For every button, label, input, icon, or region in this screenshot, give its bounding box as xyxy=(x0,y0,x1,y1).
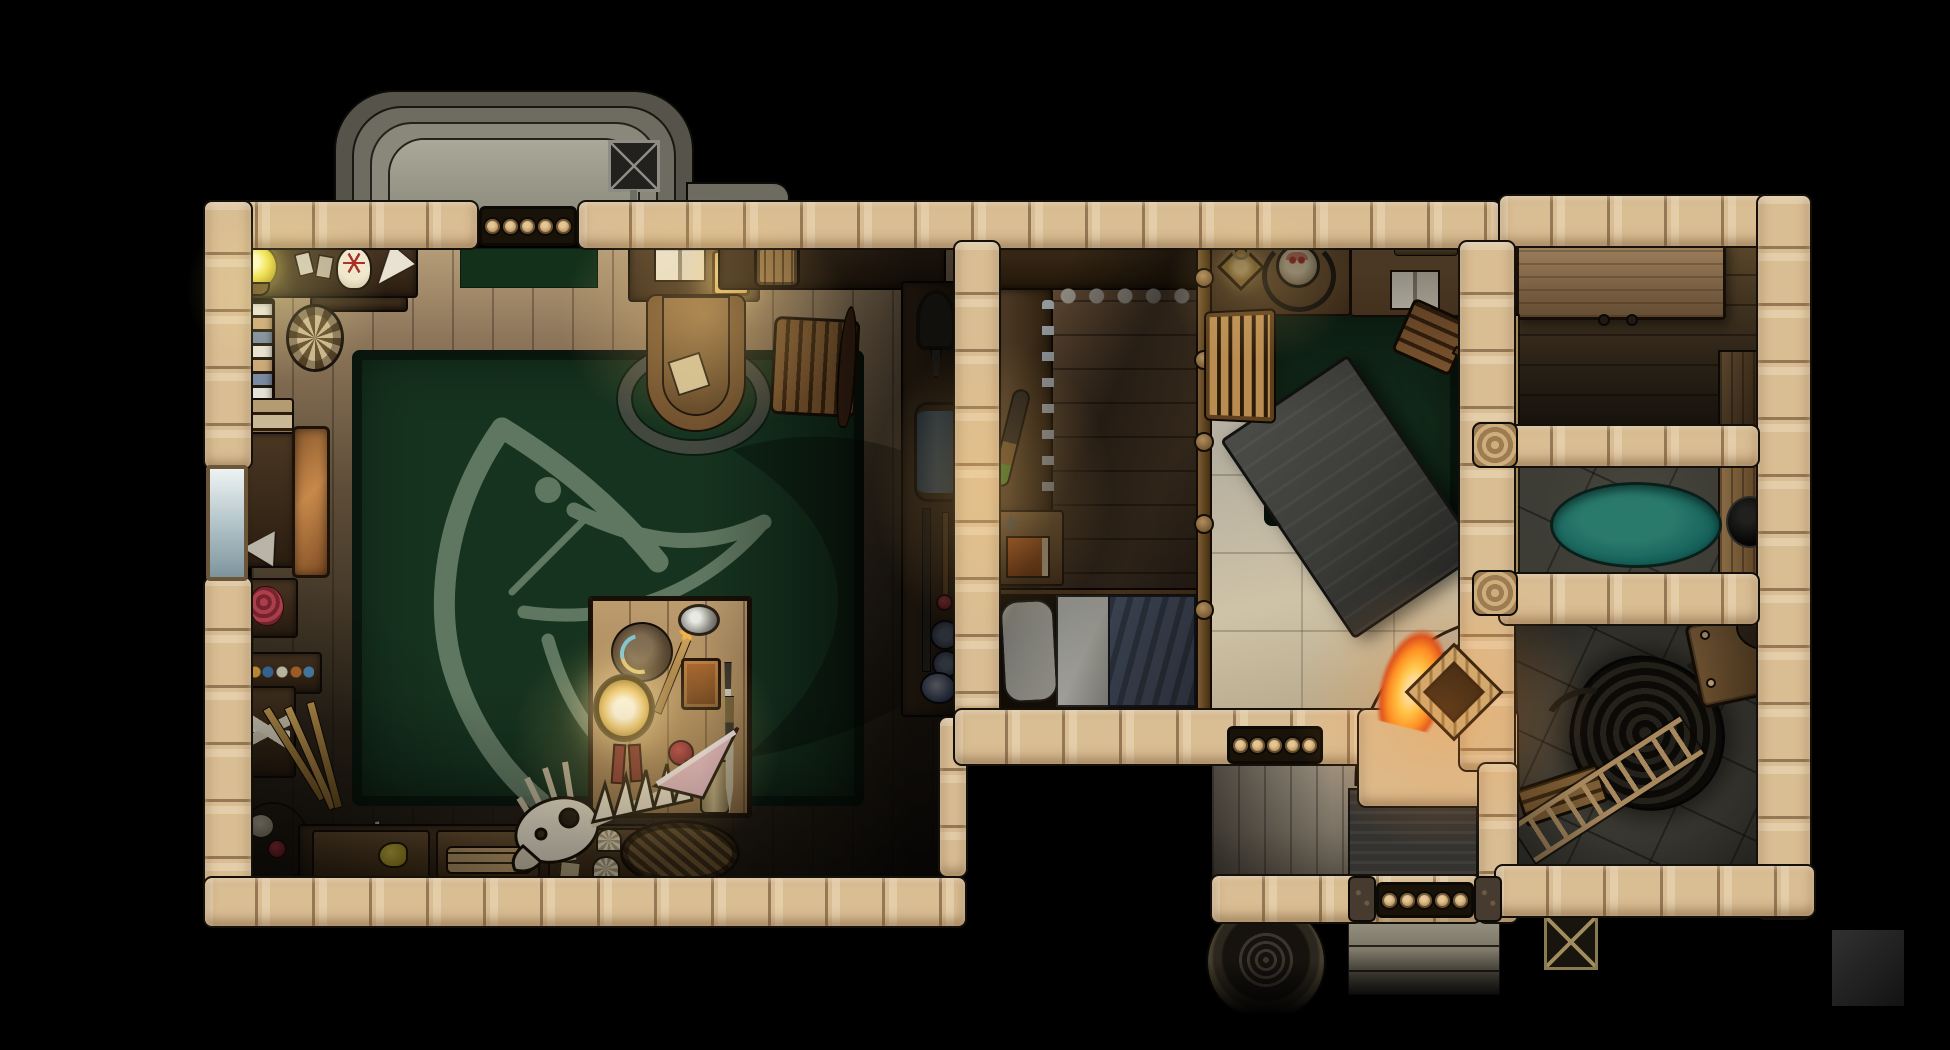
stool-bolt xyxy=(1706,678,1716,688)
window-post xyxy=(1348,876,1376,922)
weathervane-south xyxy=(1544,914,1598,970)
potion-bottles xyxy=(250,660,314,684)
pouch xyxy=(920,672,956,704)
wall-left-upper xyxy=(203,200,253,470)
wall-wash-cellar-divider xyxy=(1498,572,1760,626)
bedroom-counter xyxy=(990,244,1202,290)
glass-window-left xyxy=(206,465,248,581)
pentagram-mark xyxy=(343,252,365,274)
log-window-porch xyxy=(1376,882,1474,918)
copper-trunk xyxy=(292,426,330,578)
window-log xyxy=(1302,738,1317,753)
drawer-knob xyxy=(1598,314,1610,326)
blanket xyxy=(1108,595,1196,707)
nest-red-ball xyxy=(268,840,286,858)
seashell xyxy=(596,828,622,852)
drawer-knob xyxy=(1626,314,1638,326)
duck-figurine xyxy=(378,842,408,868)
wall-storage-wash-divider xyxy=(1498,424,1760,468)
entrails xyxy=(250,586,284,626)
crib-gate xyxy=(1206,310,1274,421)
window-log xyxy=(1250,738,1265,753)
orange-book xyxy=(1006,536,1050,578)
stool-bolt xyxy=(1700,630,1710,640)
window-post xyxy=(1474,876,1502,922)
keg xyxy=(754,244,800,288)
rail-knob xyxy=(1194,268,1214,288)
cabinet xyxy=(312,830,430,880)
wash-pool xyxy=(1550,482,1722,568)
bellows xyxy=(916,290,956,350)
green-mat xyxy=(460,248,598,288)
bench-bottles xyxy=(1042,300,1054,500)
wall-post xyxy=(1472,570,1518,616)
staff-red-knob xyxy=(936,594,953,611)
rail-knob xyxy=(1194,432,1214,452)
wall-bottom-left xyxy=(203,876,967,928)
steps-fade xyxy=(1340,950,1510,1010)
side-bench xyxy=(1718,350,1760,608)
pillow xyxy=(999,599,1058,704)
window-log xyxy=(1417,893,1432,908)
weathervane-north xyxy=(608,140,660,192)
window-log xyxy=(1435,893,1450,908)
bed-sheet xyxy=(1056,595,1110,707)
battlemap-canvas xyxy=(0,0,1950,1050)
chimney-shadow xyxy=(1832,930,1904,1006)
window-log xyxy=(485,219,500,234)
big-storage-table xyxy=(1516,236,1726,320)
loaf-shelf xyxy=(246,398,294,436)
wall-right xyxy=(1756,194,1812,920)
open-book xyxy=(654,246,706,282)
spear xyxy=(922,508,931,672)
wall-post xyxy=(1472,422,1518,468)
wall-bottom-right xyxy=(1494,864,1816,918)
window-log xyxy=(1453,893,1468,908)
hanging-steins xyxy=(1054,286,1196,306)
log-window-top xyxy=(479,206,577,246)
trinket-box xyxy=(681,658,721,710)
wall-study-bedroom-divider xyxy=(953,240,1001,718)
hand-mirror xyxy=(678,604,720,636)
window-log xyxy=(503,219,518,234)
log-window-mid xyxy=(1227,726,1323,764)
window-log xyxy=(1382,893,1397,908)
wall-top-main xyxy=(577,200,1502,250)
scroll-rosette xyxy=(286,304,344,372)
window-log xyxy=(1285,738,1300,753)
window-log xyxy=(1400,893,1415,908)
window-log xyxy=(1267,738,1282,753)
window-log xyxy=(538,219,553,234)
window-log xyxy=(556,219,571,234)
rail-knob xyxy=(1194,514,1214,534)
well-fade xyxy=(1204,960,1328,1024)
rail-knob xyxy=(1194,600,1214,620)
window-log xyxy=(1233,738,1248,753)
cauldron-skull-mark xyxy=(1286,252,1308,270)
window-log xyxy=(520,219,535,234)
